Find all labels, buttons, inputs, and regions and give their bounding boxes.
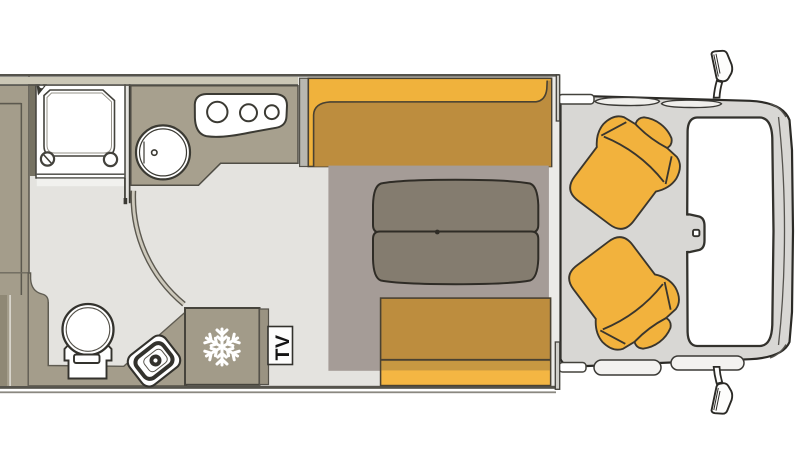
svg-text:TV: TV [272,334,294,360]
